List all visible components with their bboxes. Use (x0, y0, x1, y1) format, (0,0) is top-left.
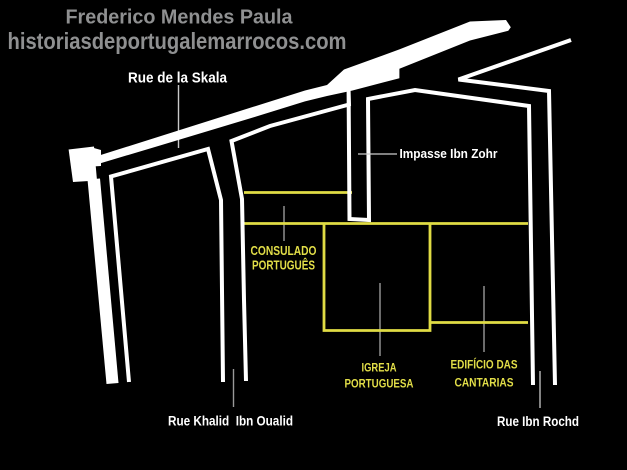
svg-text:CONSULADO: CONSULADO (251, 244, 317, 258)
svg-text:PORTUGUESA: PORTUGUESA (345, 376, 414, 390)
svg-text:Frederico Mendes Paula: Frederico Mendes Paula (66, 7, 294, 29)
svg-text:IGREJA: IGREJA (362, 361, 397, 375)
svg-text:CANTARIAS: CANTARIAS (455, 376, 514, 390)
svg-text:Rue Khalid Ibn Oualid: Rue Khalid Ibn Oualid (168, 413, 293, 429)
svg-text:Rue de la Skala: Rue de la Skala (128, 70, 228, 87)
svg-text:Impasse Ibn Zohr: Impasse Ibn Zohr (400, 146, 498, 161)
svg-text:PORTUGUÊS: PORTUGUÊS (252, 257, 315, 272)
svg-text:historiasdeportugalemarrocos.c: historiasdeportugalemarrocos.com (8, 28, 347, 54)
svg-text:Rue Ibn Rochd: Rue Ibn Rochd (497, 414, 579, 430)
svg-text:EDIFÍCIO DAS: EDIFÍCIO DAS (451, 357, 518, 372)
